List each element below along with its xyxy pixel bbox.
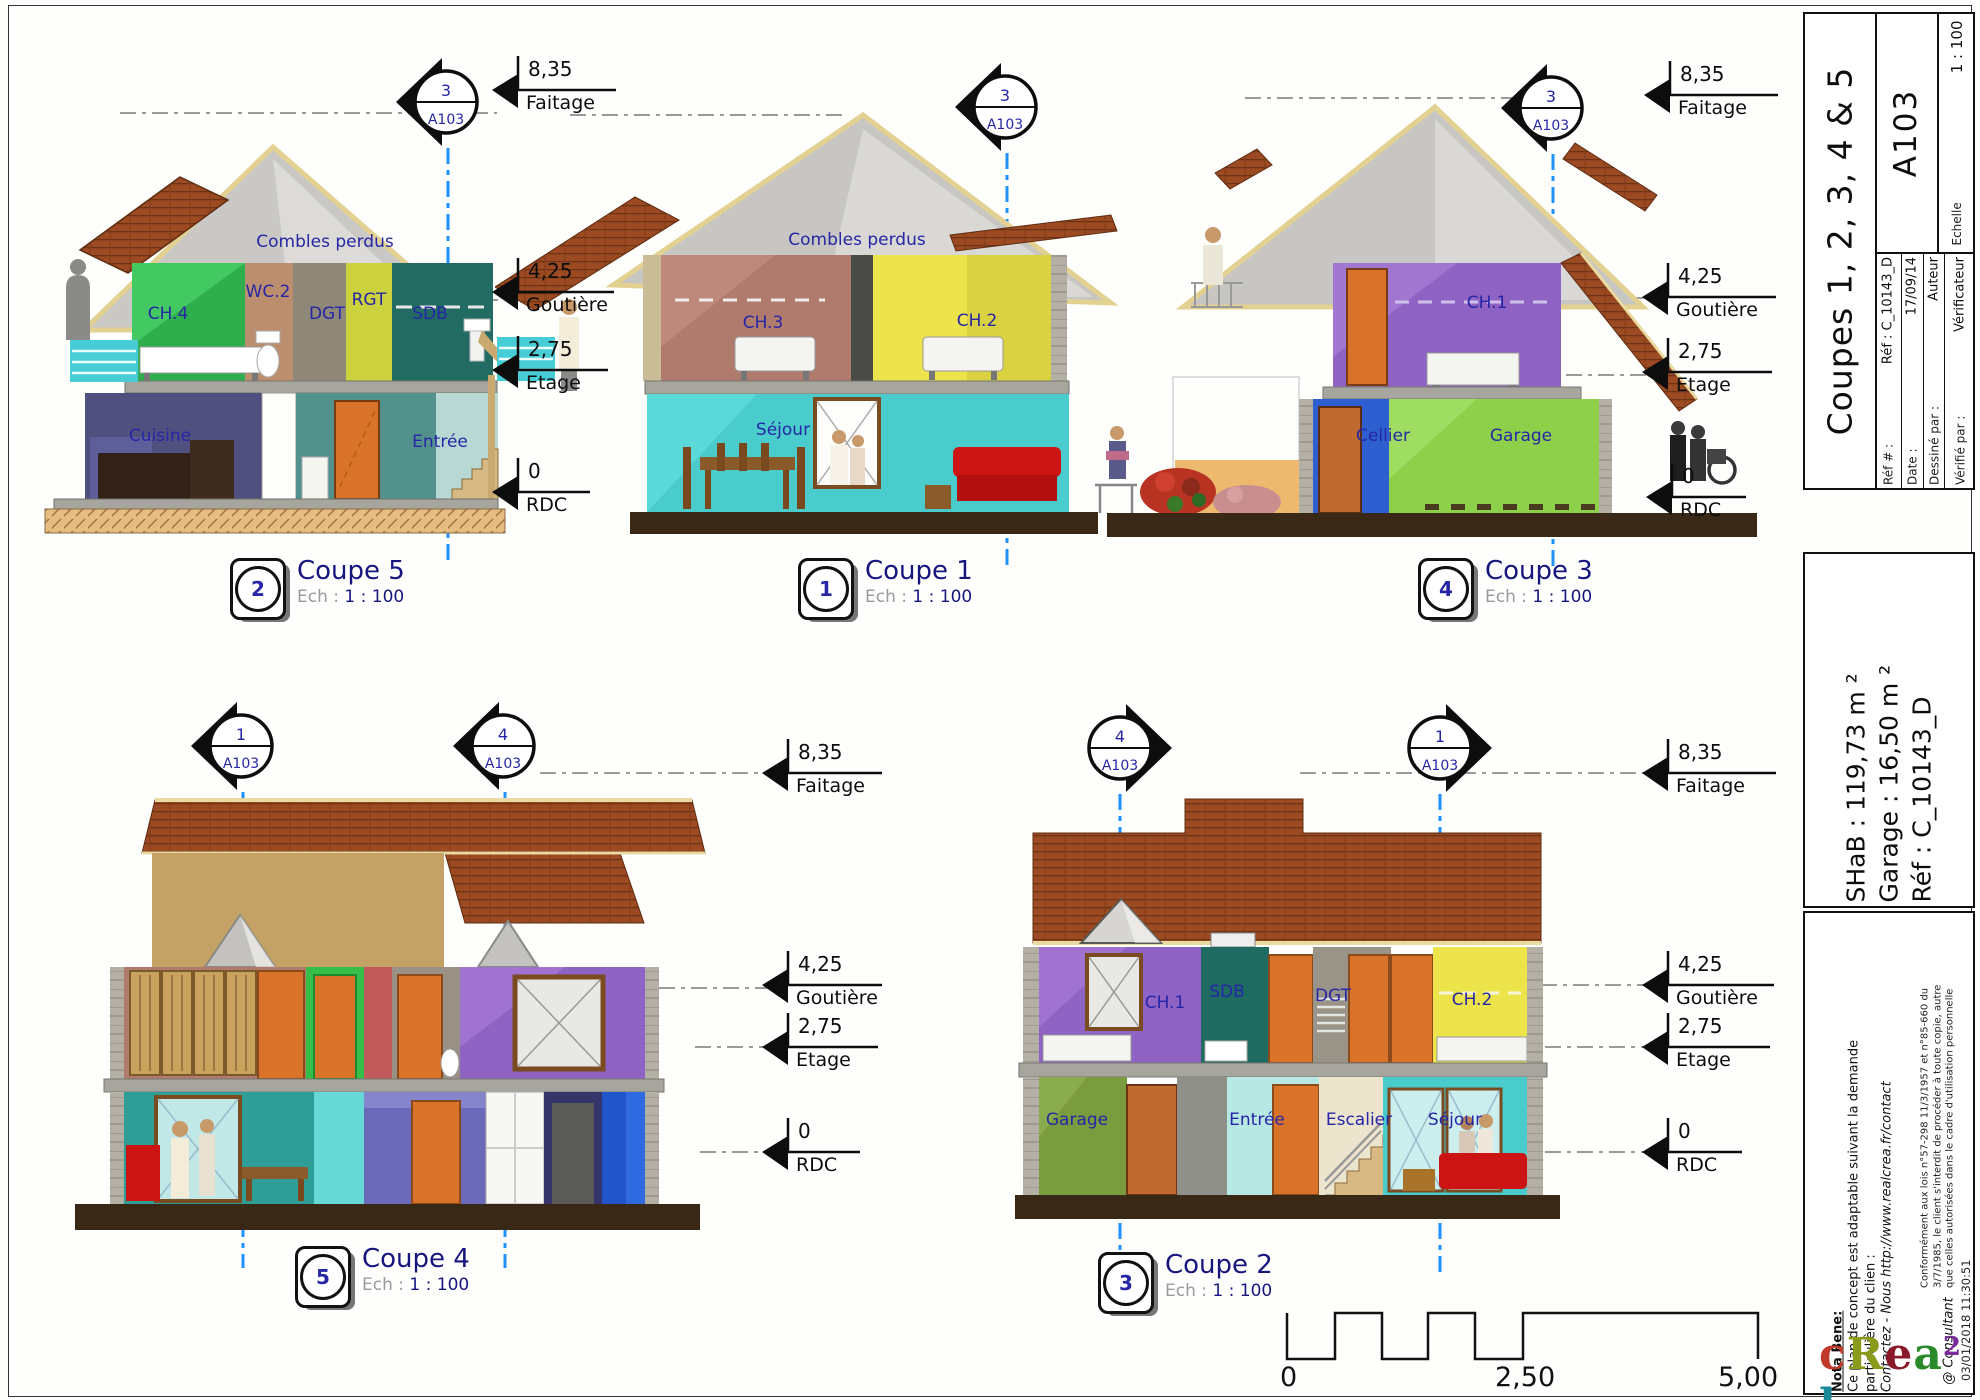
marker-sheet: A103	[223, 756, 259, 772]
caption-title: Coupe 4	[362, 1246, 470, 1273]
ref-label: Réf # :	[1881, 444, 1895, 485]
room-label-entree: Entrée	[412, 432, 468, 452]
flag-c3-etage: 2,75Etage	[1636, 332, 1778, 400]
nota-contact: Contactez - Nous http://www.realcrea.fr/…	[1879, 916, 1895, 1392]
nota-line2: particulière du clien :	[1863, 916, 1879, 1392]
caption-coupe3: 4 Coupe 3 Ech : 1 : 100	[1418, 558, 1593, 620]
marker-number: 3	[1546, 87, 1556, 106]
marker-number: 3	[441, 81, 451, 100]
graphic-scale-bar: 0 2,50 5,00 m	[1270, 1296, 1810, 1400]
caption-title: Coupe 2	[1165, 1252, 1273, 1279]
caption-badge: 3	[1098, 1252, 1154, 1314]
section-marker-coupe3: 3 A103	[1493, 62, 1601, 154]
flag-c4-etage: 2,75Etage	[756, 1007, 898, 1075]
marker-sheet: A103	[1422, 758, 1458, 774]
room-label-cellier: Cellier	[1356, 426, 1410, 446]
flag-c2-etage: 2,75Etage	[1636, 1007, 1778, 1075]
room-label-garage: Garage	[1046, 1110, 1108, 1130]
title-block-areas: SHaB : 119,73 m ² Garage : 16,50 m ² Réf…	[1803, 552, 1975, 908]
room-label-wc2: WC.2	[246, 282, 291, 302]
marker-number: 1	[236, 725, 246, 744]
marker-number: 4	[1115, 727, 1125, 746]
section-marker-coupe2-4: 4 A103	[1072, 702, 1180, 794]
section-marker-coupe4-1: 1 A103	[183, 700, 291, 792]
room-label-ch3: CH.3	[743, 313, 784, 333]
flag-c3-gouttiere: 4,25Goutière	[1636, 257, 1778, 325]
marker-number: 1	[1435, 727, 1445, 746]
caption-title: Coupe 1	[865, 558, 973, 585]
nota-line1: Ce plan de concept est adaptable suivant…	[1847, 916, 1863, 1392]
legal-line1: Conformément aux lois n°57-298 11/3/1957…	[1919, 918, 1932, 1288]
scale-tick-0: 0	[1280, 1362, 1297, 1393]
caption-badge: 4	[1418, 558, 1474, 620]
room-label-ch4: CH.4	[148, 304, 189, 324]
room-label-sejour: Séjour	[756, 420, 810, 440]
flag-c5-rdc: 0RDC	[486, 452, 628, 520]
section-marker-coupe4-4: 4 A103	[445, 700, 553, 792]
legal-line3: que celles autorisées dans le cadre d'ut…	[1944, 918, 1957, 1288]
flag-c2-gouttiere: 4,25Goutière	[1636, 945, 1778, 1013]
marker-sheet: A103	[485, 756, 521, 772]
room-label-escalier: Escalier	[1326, 1110, 1392, 1130]
print-timestamp: 03/01/2018 11:30:51	[1954, 1242, 1978, 1382]
sheet-number: A103	[1888, 14, 1924, 252]
room-label-dgt: DGT	[309, 304, 346, 324]
marker-sheet: A103	[1102, 758, 1138, 774]
caption-coupe2: 3 Coupe 2 Ech : 1 : 100	[1098, 1252, 1273, 1314]
flag-c2-faitage: 8,35Faitage	[1636, 733, 1778, 801]
sheet-title: Coupes 1, 2, 3, 4 & 5	[1821, 14, 1860, 488]
area-shab: SHaB : 119,73 m ²	[1842, 558, 1871, 903]
room-label-combles: Combles perdus	[788, 230, 926, 250]
title-block-nota: Nota Bene: Ce plan de concept est adapta…	[1803, 911, 1975, 1395]
flag-c4-rdc: 0RDC	[756, 1112, 898, 1180]
flag-c3-faitage: 8,35Faitage	[1638, 55, 1780, 123]
marker-sheet: A103	[428, 112, 464, 128]
date-label: Date :	[1905, 448, 1919, 485]
flag-c2-rdc: 0RDC	[1636, 1112, 1778, 1180]
title-block-info: Coupes 1, 2, 3, 4 & 5 A103 Echelle 1 : 1…	[1803, 12, 1975, 490]
flag-c4-faitage: 8,35Faitage	[756, 733, 898, 801]
room-label-ch2: CH.2	[1452, 990, 1493, 1010]
area-ref: Réf : C_10143_D	[1908, 558, 1937, 903]
marker-number: 3	[1000, 86, 1010, 105]
ref-value: Réf : C_10143_D	[1881, 257, 1896, 364]
caption-coupe4: 5 Coupe 4 Ech : 1 : 100	[295, 1246, 470, 1308]
coupe-5-drawing: Combles perdus CH.4 WC.2 DGT RGT SDB Cui…	[40, 135, 510, 545]
date-value: 17/09/14	[1905, 257, 1920, 315]
caption-badge: 1	[798, 558, 854, 620]
nota-heading: Nota Bene:	[1831, 916, 1847, 1392]
marker-sheet: A103	[987, 117, 1023, 133]
section-marker-coupe2-1: 1 A103	[1392, 702, 1500, 794]
caption-title: Coupe 5	[297, 558, 405, 585]
plan-sheet: Combles perdus CH.4 WC.2 DGT RGT SDB Cui…	[0, 0, 1980, 1400]
room-label-ch1: CH.1	[1145, 993, 1186, 1013]
coupe-2-drawing: CH.1 SDB DGT CH.2 Garage Entrée Escalier…	[1015, 755, 1560, 1265]
room-label-rgt: RGT	[352, 290, 387, 310]
flag-c4-gouttiere: 4,25Goutière	[756, 945, 898, 1013]
room-label-sejour: Séjour	[1428, 1110, 1482, 1130]
flag-c5-faitage: 8,35Faitage	[486, 50, 628, 118]
scale-tick-250: 2,50	[1495, 1362, 1555, 1393]
flag-c5-etage: 2,75Etage	[486, 330, 628, 398]
flag-c5-gouttiere: 4,25Goutière	[486, 252, 628, 320]
legal-line2: 3/7/1985, le client s'interdit de procéd…	[1932, 918, 1945, 1288]
checked-by-value: Vérificateur	[1952, 257, 1967, 332]
room-label-sdb: SDB	[1209, 982, 1245, 1002]
drawn-by-label: Dessiné par :	[1927, 406, 1941, 485]
area-garage: Garage : 16,50 m ²	[1875, 558, 1904, 903]
caption-coupe5: 2 Coupe 5 Ech : 1 : 100	[230, 558, 405, 620]
marker-sheet: A103	[1533, 118, 1569, 134]
room-label-combles: Combles perdus	[256, 232, 394, 252]
scale-label: Echelle	[1950, 202, 1964, 245]
scale-value: 1 : 100	[1948, 21, 1966, 74]
section-marker-coupe5: 3 A103	[388, 56, 496, 148]
flag-c3-rdc: 0RDC	[1640, 457, 1782, 525]
caption-badge: 5	[295, 1246, 351, 1308]
room-label-ch2: CH.2	[957, 311, 998, 331]
room-label-ch1: CH.1	[1467, 293, 1508, 313]
crea-logo: cRea2l	[1819, 1329, 1973, 1400]
room-label-sdb: SDB	[412, 304, 448, 324]
room-label-cuisine: Cuisine	[129, 426, 191, 446]
section-marker-coupe1: 3 A103	[947, 61, 1055, 153]
room-label-dgt: DGT	[1315, 986, 1352, 1006]
caption-title: Coupe 3	[1485, 558, 1593, 585]
caption-badge: 2	[230, 558, 286, 620]
room-label-garage: Garage	[1490, 426, 1552, 446]
marker-number: 4	[498, 725, 508, 744]
scale-tick-500: 5,00 m	[1718, 1362, 1810, 1400]
drawn-by-value: Auteur	[1926, 257, 1941, 301]
caption-coupe1: 1 Coupe 1 Ech : 1 : 100	[798, 558, 973, 620]
checked-by-label: Vérifié par :	[1953, 416, 1967, 485]
title-block: Coupes 1, 2, 3, 4 & 5 A103 Echelle 1 : 1…	[1800, 8, 1976, 1398]
room-label-entree: Entrée	[1229, 1110, 1285, 1130]
